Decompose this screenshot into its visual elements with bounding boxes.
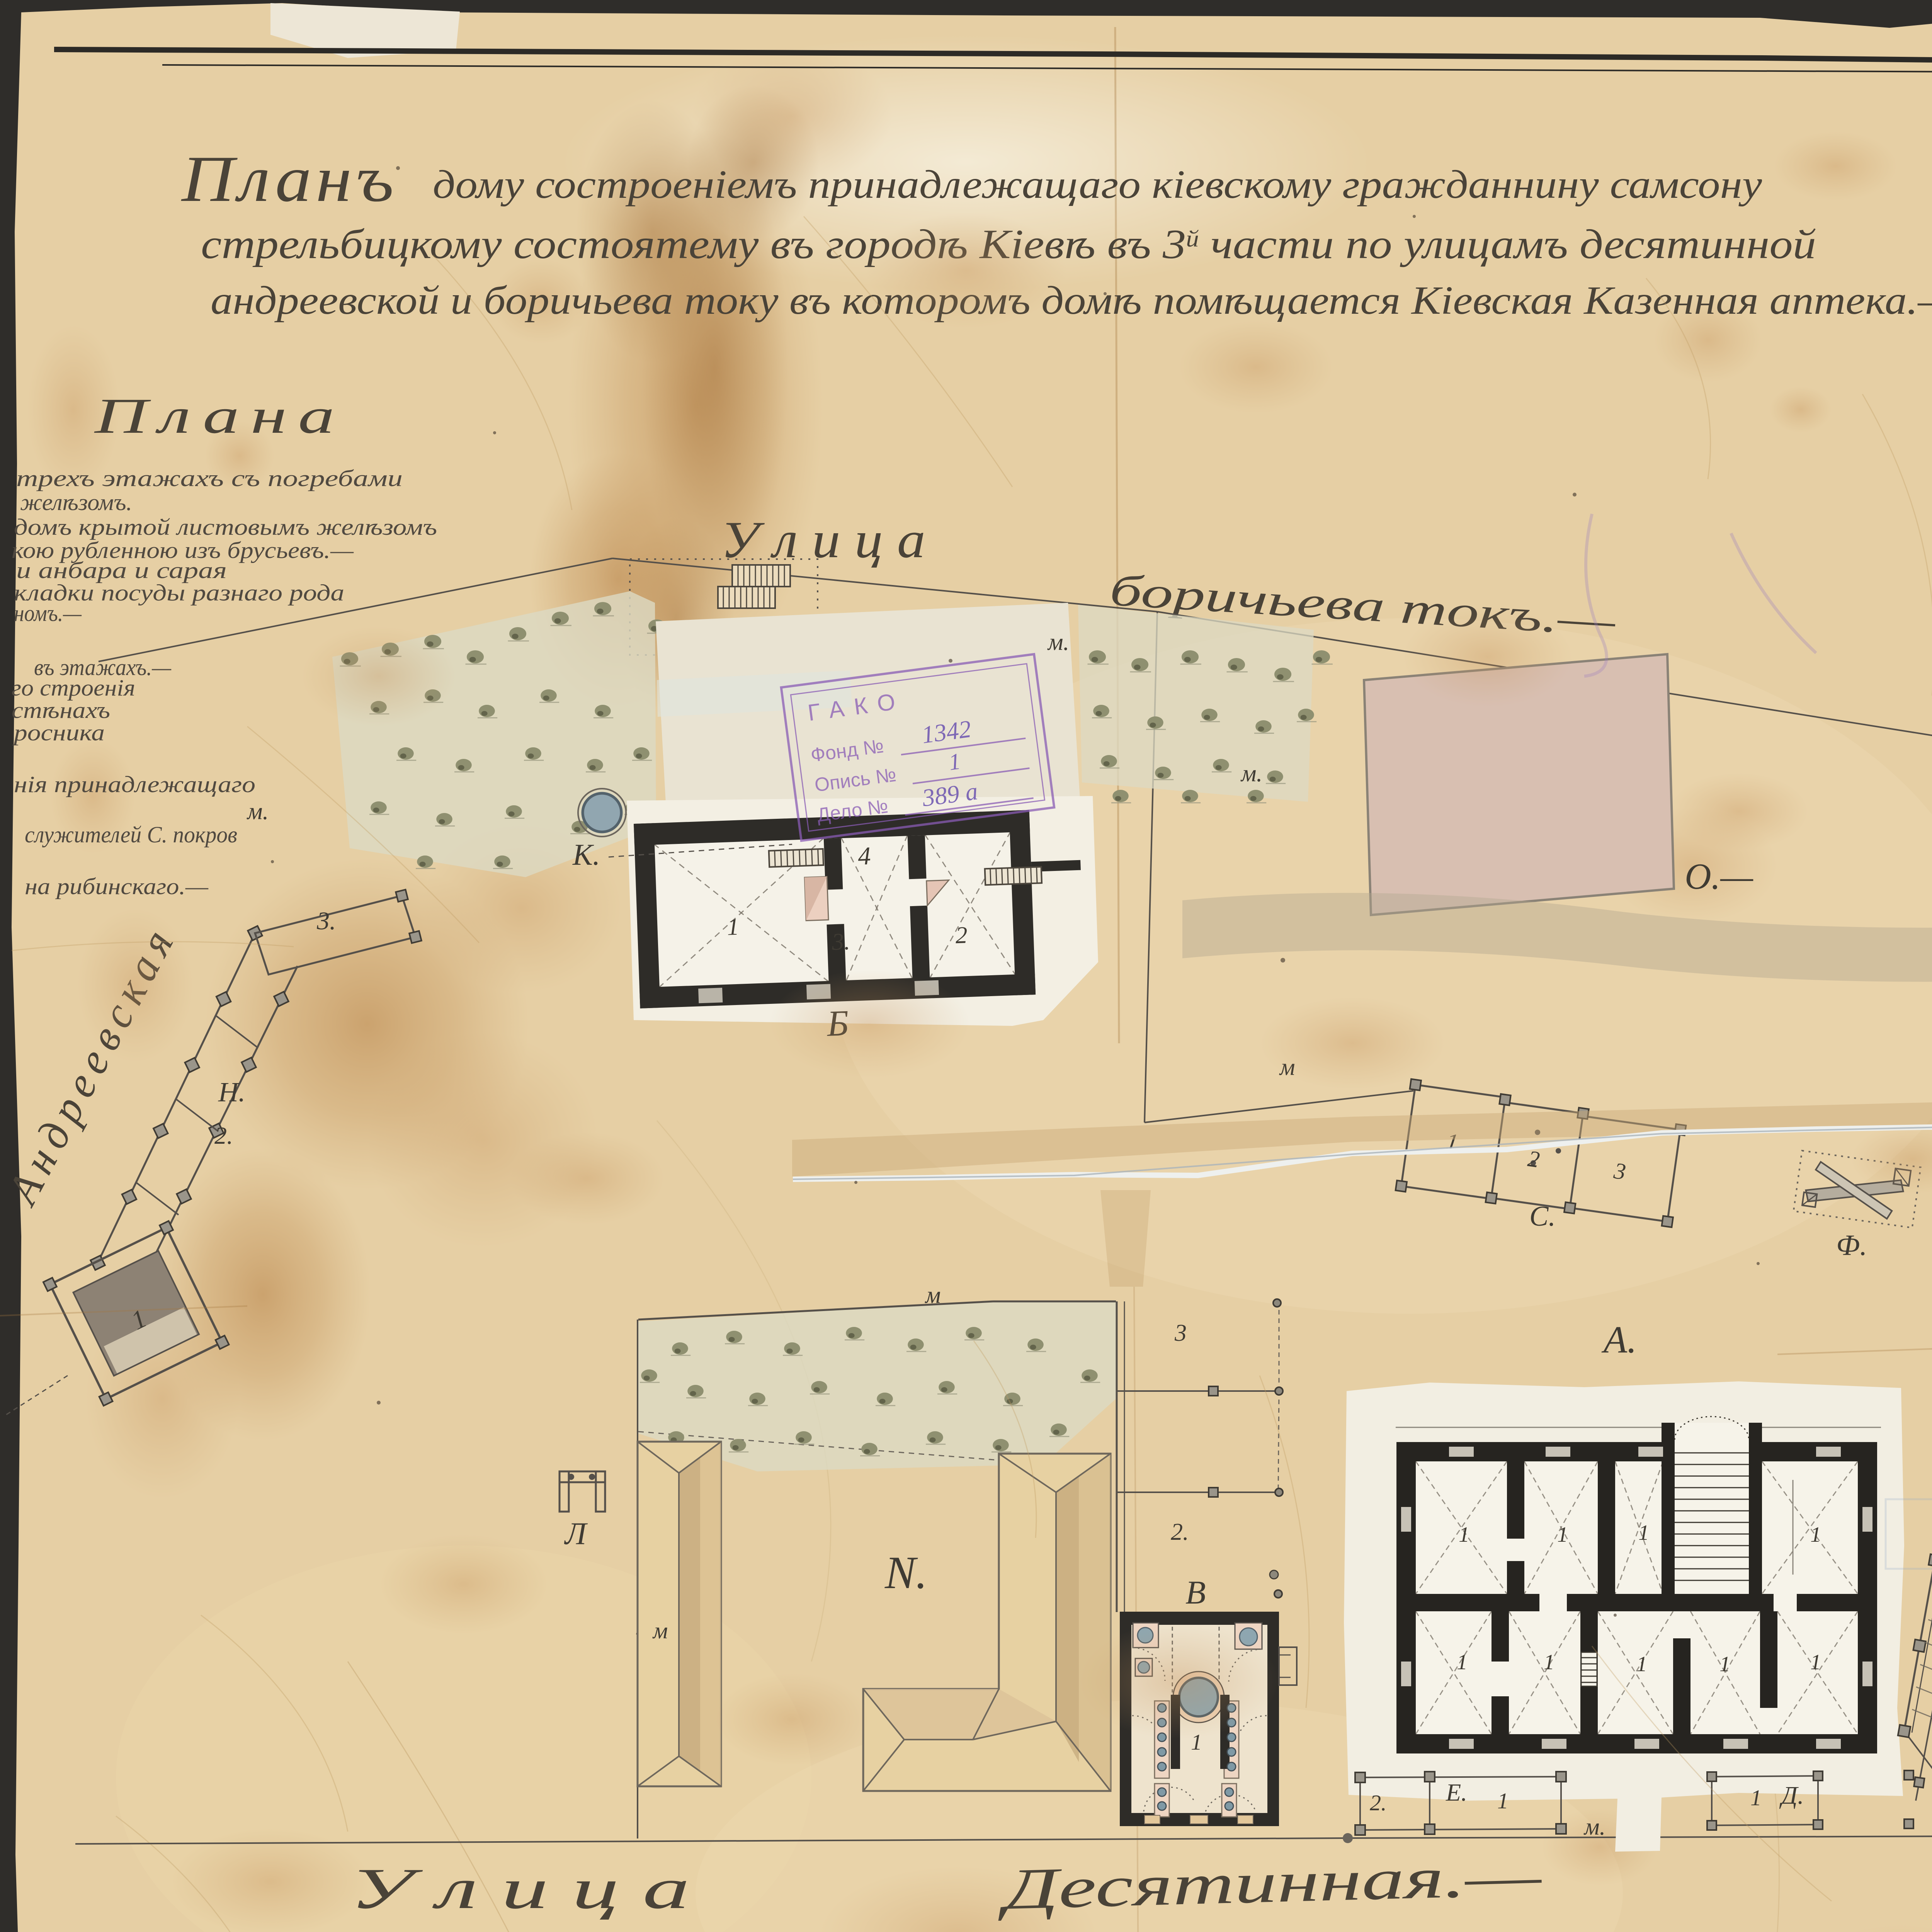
svg-text:С.: С. [1529, 1201, 1556, 1232]
svg-text:Плана: Плана [94, 388, 346, 444]
svg-text:росника: росника [12, 720, 105, 745]
svg-text:дому состроенiемъ принадлежа: дому состроенiемъ принадлежащаго кiевско… [433, 162, 1762, 207]
svg-text:1: 1 [1636, 1652, 1647, 1676]
svg-text:и анбара и сарая: и анбара и сарая [16, 558, 227, 583]
svg-text:1: 1 [726, 914, 739, 940]
svg-text:номъ.—: номъ.— [14, 600, 82, 626]
svg-text:м.: м. [1047, 629, 1069, 655]
svg-text:2.: 2. [1171, 1519, 1189, 1545]
svg-text:1: 1 [1750, 1785, 1762, 1810]
svg-text:2: 2 [955, 922, 968, 949]
svg-text:3: 3 [1174, 1320, 1187, 1346]
svg-text:1: 1 [1459, 1523, 1469, 1547]
svg-text:м.: м. [1583, 1814, 1605, 1840]
svg-text:м.: м. [1240, 760, 1262, 787]
svg-text:1: 1 [1810, 1523, 1821, 1547]
svg-text:желѣзомъ.: желѣзомъ. [20, 490, 132, 515]
svg-text:N.: N. [884, 1547, 927, 1598]
svg-text:Н.: Н. [218, 1077, 245, 1107]
svg-text:1: 1 [1557, 1523, 1568, 1547]
svg-text:1: 1 [1810, 1650, 1821, 1674]
svg-text:О.—: О.— [1685, 856, 1753, 897]
svg-text:1: 1 [1719, 1652, 1730, 1676]
svg-text:м.: м. [247, 798, 269, 825]
svg-text:1: 1 [1497, 1788, 1509, 1813]
svg-text:1: 1 [1638, 1521, 1649, 1545]
svg-text:трехъ этажахъ съ погребами: трехъ этажахъ съ погребами [16, 466, 403, 491]
svg-text:3.: 3. [831, 929, 850, 956]
svg-text:домъ крытой листовымъ желѣзомъ: домъ крытой листовымъ желѣзомъ [14, 514, 437, 540]
svg-text:3.: 3. [316, 907, 336, 935]
svg-text:Е.: Е. [1446, 1779, 1467, 1806]
svg-text:стѣнахъ: стѣнахъ [12, 697, 110, 723]
svg-text:2.: 2. [214, 1122, 233, 1149]
svg-text:У л и ц а: У л и ц а [350, 1857, 690, 1921]
svg-text:го строенiя: го строенiя [12, 675, 135, 701]
svg-text:К.: К. [572, 838, 600, 871]
svg-text:на рибинскаго.—: на рибинскаго.— [25, 874, 209, 899]
svg-text:4: 4 [857, 842, 871, 871]
svg-text:нiя принадлежащаго: нiя принадлежащаго [14, 772, 255, 797]
svg-text:В: В [1185, 1574, 1206, 1611]
svg-text:Планъ: Планъ [181, 143, 398, 215]
svg-text:Ф.: Ф. [1836, 1229, 1867, 1262]
svg-text:Д.: Д. [1779, 1781, 1804, 1810]
svg-text:Л: Л [564, 1516, 588, 1551]
svg-text:м: м [652, 1618, 668, 1643]
svg-text:А.: А. [1601, 1318, 1637, 1361]
svg-text:1: 1 [1457, 1650, 1468, 1674]
svg-text:У л и ц а: У л и ц а [721, 511, 925, 569]
svg-text:2.: 2. [1370, 1790, 1387, 1815]
svg-text:1: 1 [1544, 1650, 1554, 1674]
svg-text:служителей С. покров: служителей С. покров [25, 822, 237, 847]
